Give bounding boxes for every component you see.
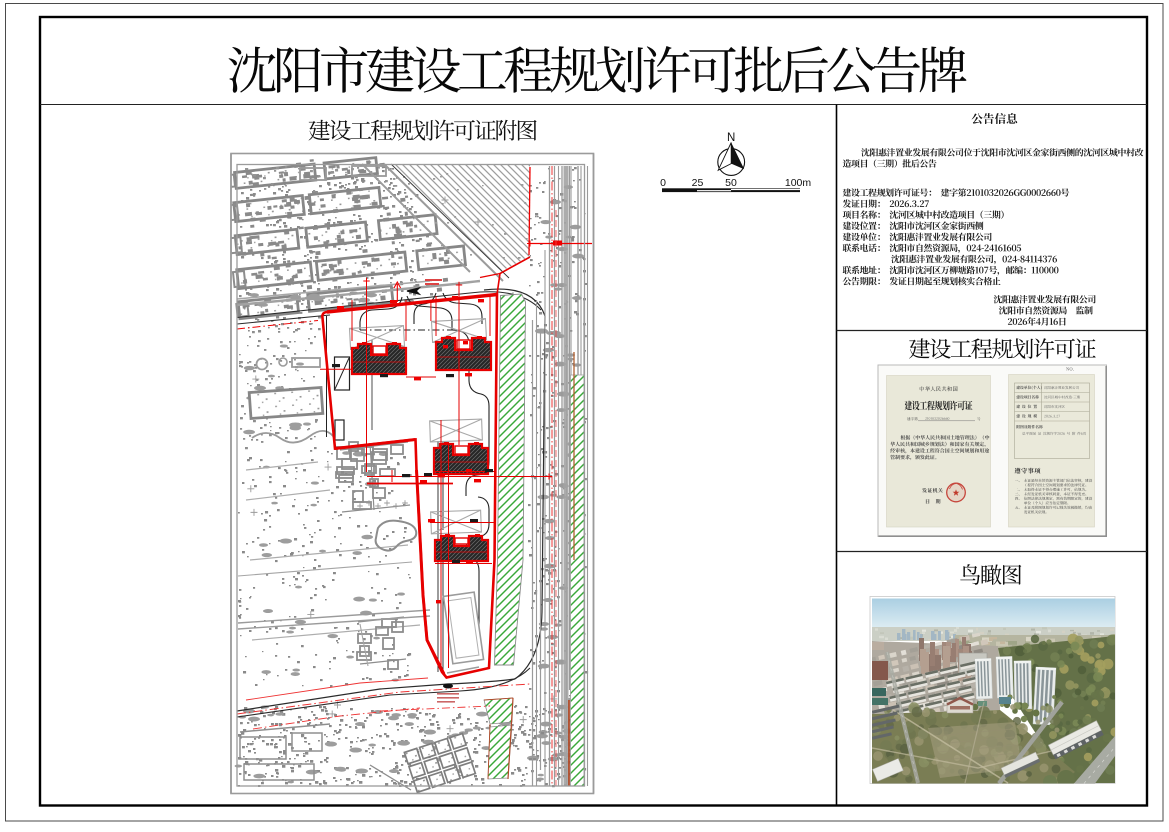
svg-text:100m: 100m bbox=[785, 177, 812, 189]
svg-text:50: 50 bbox=[725, 177, 737, 189]
svg-text:25: 25 bbox=[692, 177, 704, 189]
svg-text:N: N bbox=[727, 132, 735, 144]
svg-text:0: 0 bbox=[660, 177, 666, 189]
